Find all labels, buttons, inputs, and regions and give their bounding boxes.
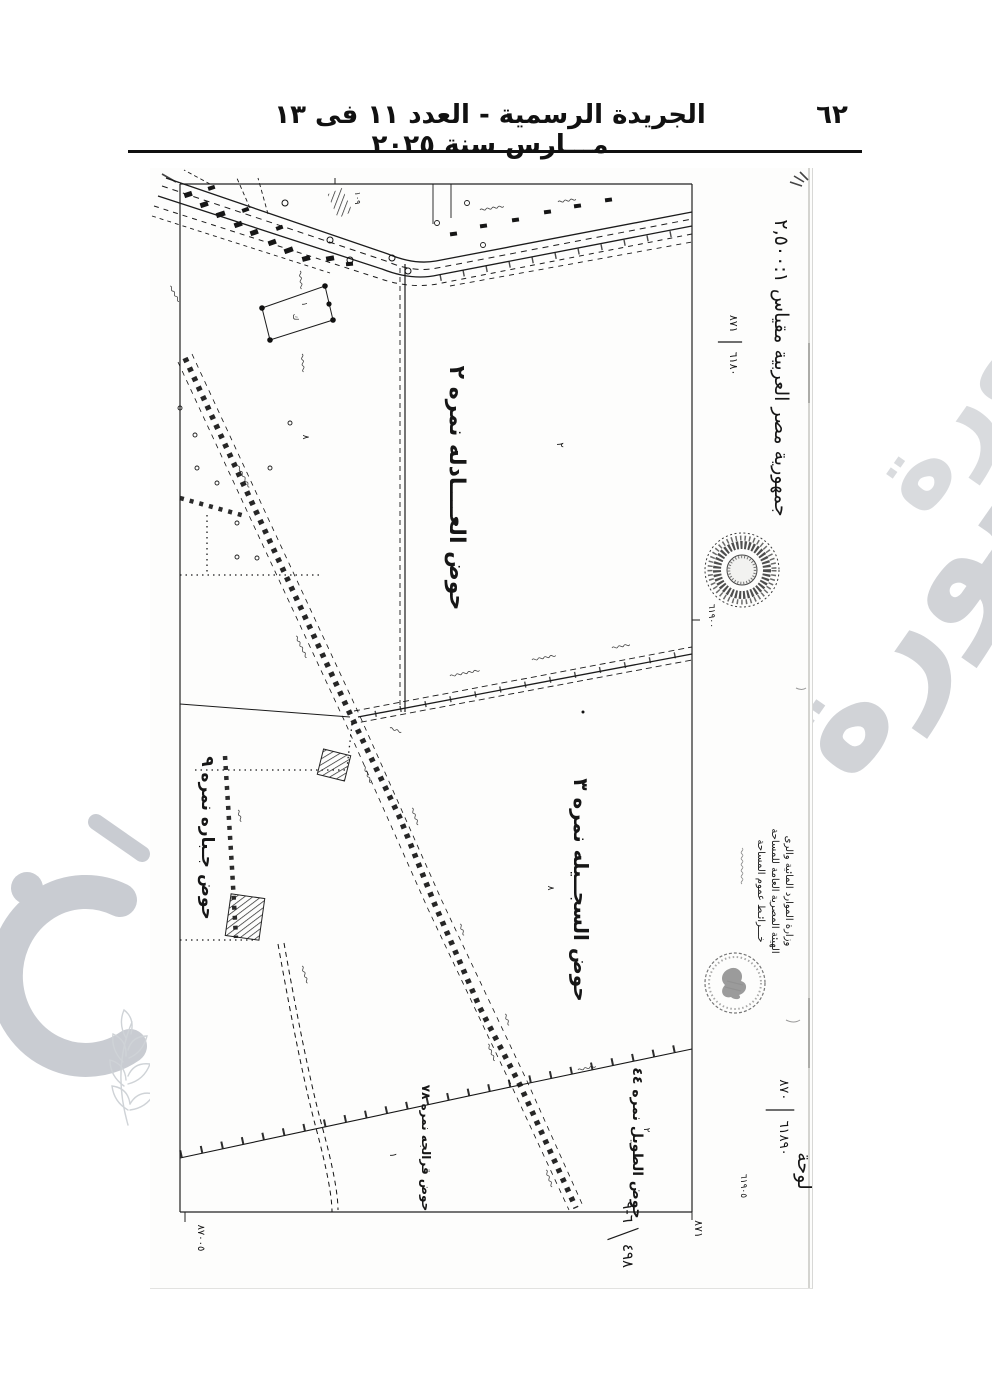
stamp-line-2: الهيئة المصرية العامة للمساحة <box>769 828 780 953</box>
sheet-fraction-top-numerator: ٨٧١ <box>727 315 740 333</box>
map-frame <box>180 178 700 1222</box>
grid-number-mid: ٦١٩٠٠ <box>706 604 716 628</box>
corner-number-left: ٨٧٠٠٥ <box>195 1225 206 1252</box>
parcel-number: ٨ <box>545 886 555 891</box>
watermark-crescent <box>6 892 130 1060</box>
hod-label: حوض قرالجه نمره ٧٨ <box>418 1085 433 1211</box>
parcel-number: ١ <box>387 1152 398 1157</box>
hod-label: حوض جـباره نمره ٩ <box>197 756 217 920</box>
eagle-stamp-seal <box>705 953 765 1013</box>
sheet-fraction-top-denominator: ٦١٨٠ <box>727 352 740 376</box>
laurel-branch-icon <box>110 1010 154 1125</box>
road-annotation-squiggles <box>169 198 743 1187</box>
hod-label: حوض العــــادله نمره ٢ <box>444 366 469 611</box>
canal-road <box>178 354 583 1210</box>
parcel-boundary-line <box>180 264 405 717</box>
watermark-slash <box>96 822 142 854</box>
sheet-fraction-bottom-numerator: ٨٧٠ <box>776 1079 791 1100</box>
handwritten-fraction-bar <box>607 1228 638 1239</box>
gazette-page: الجريدة الرسمية - العدد ١١ فى ١٣ مـــارس… <box>0 0 992 1400</box>
header-rule <box>128 150 862 153</box>
parcel-number: ٢ <box>554 442 565 447</box>
parcel-number: ١ <box>300 302 309 306</box>
scan-artifacts <box>162 168 809 1288</box>
stamp-line-1: وزارة الموارد المائية والرى <box>783 836 794 947</box>
hod-boundary-ticked <box>180 1045 692 1158</box>
official-seal <box>705 533 779 607</box>
sheet-fraction-bottom-denominator: ٦١٨٩٠ <box>776 1121 791 1156</box>
sheet-word: لوحة <box>793 1152 812 1190</box>
country-scale-label: جمهورية مصر العربية مقياس ٢,٥٠٠:١ <box>770 219 792 516</box>
watermark-text-upper: صورة <box>842 212 992 531</box>
stamp-line-3: خـــرائـط عموم المساحة <box>755 839 766 942</box>
parcel-number: ١٠٩ <box>353 192 362 205</box>
hod-label: حوض السجــيله نمره ٣ <box>569 778 593 1001</box>
map-sheet-scan: حوض العــــادله نمره ٢حوض السجــيله نمره… <box>150 168 813 1289</box>
road-nodes <box>282 200 585 714</box>
eagle-icon <box>722 968 746 999</box>
parcel-number: ك <box>291 314 300 321</box>
page-number: ٦٢ <box>802 100 862 130</box>
field-lanes <box>225 756 338 1212</box>
village-road <box>152 170 692 286</box>
parcel-number: ٨ <box>300 435 310 440</box>
grid-number-bottom: ٦١٩٠٥ <box>738 1174 748 1198</box>
parcel-number: ٢ <box>641 1128 651 1133</box>
watermark-dot <box>11 872 43 904</box>
hod-label: حوض الطويل نمره ٤٤ <box>629 1067 645 1218</box>
map-labels-layer: حوض العــــادله نمره ٢حوض السجــيله نمره… <box>195 192 812 1268</box>
tree-symbols <box>178 201 486 561</box>
junction-road-east <box>351 647 692 724</box>
corner-number-right: ٨٧١ <box>692 1220 705 1238</box>
handwritten-fraction-denominator: ٤٩٨ <box>619 1244 637 1268</box>
cadastral-map: حوض العــــادله نمره ٢حوض السجــيله نمره… <box>150 168 812 1288</box>
handwritten-fraction-numerator: ٦-٩ <box>619 1201 637 1223</box>
